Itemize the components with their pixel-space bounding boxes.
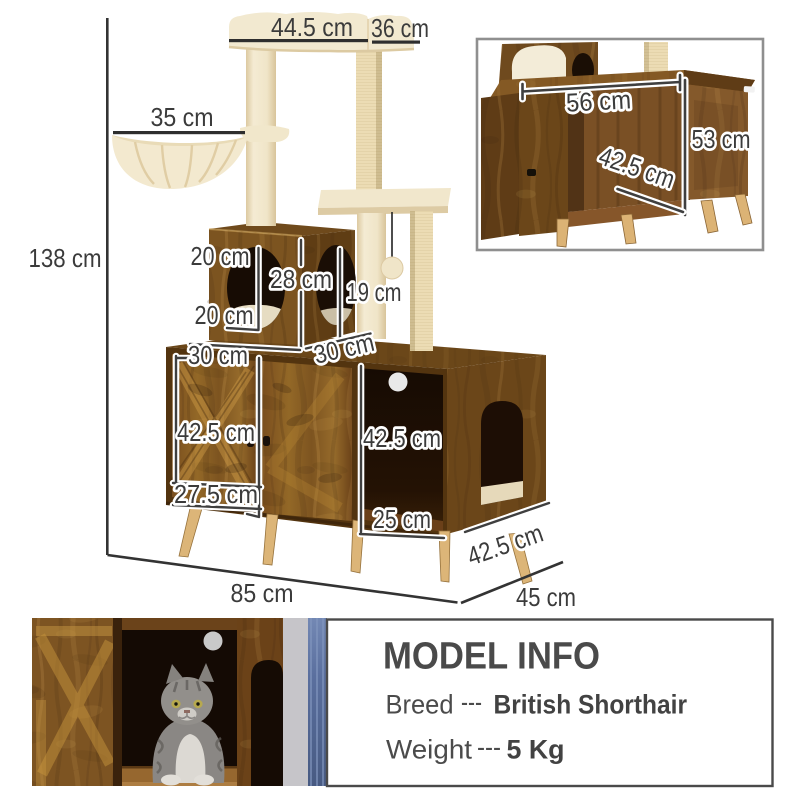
svg-text:42.5 cm: 42.5 cm (177, 417, 255, 447)
svg-text:---: --- (477, 732, 501, 762)
svg-text:138 cm: 138 cm (29, 243, 102, 273)
svg-text:42.5 cm: 42.5 cm (363, 423, 441, 453)
svg-text:53 cm: 53 cm (692, 124, 751, 154)
svg-text:44.5 cm: 44.5 cm (271, 12, 353, 42)
svg-text:20 cm: 20 cm (195, 300, 254, 330)
svg-text:Breed: Breed (386, 690, 454, 720)
svg-text:MODEL INFO: MODEL INFO (383, 636, 600, 678)
svg-text:---: --- (461, 687, 482, 717)
svg-text:30 cm: 30 cm (188, 340, 248, 370)
svg-text:45 cm: 45 cm (516, 582, 576, 612)
svg-text:27.5 cm: 27.5 cm (174, 479, 258, 509)
svg-text:35 cm: 35 cm (151, 102, 214, 132)
svg-text:20 cm: 20 cm (191, 241, 250, 271)
svg-text:25 cm: 25 cm (373, 504, 431, 534)
svg-text:85 cm: 85 cm (231, 578, 294, 608)
svg-text:36 cm: 36 cm (371, 13, 429, 43)
svg-text:56 cm: 56 cm (565, 84, 631, 117)
svg-text:5 Kg: 5 Kg (507, 735, 565, 765)
svg-text:Weight: Weight (386, 735, 473, 765)
svg-text:British Shorthair: British Shorthair (494, 690, 688, 720)
svg-text:19 cm: 19 cm (347, 277, 402, 307)
svg-text:28 cm: 28 cm (270, 264, 332, 294)
